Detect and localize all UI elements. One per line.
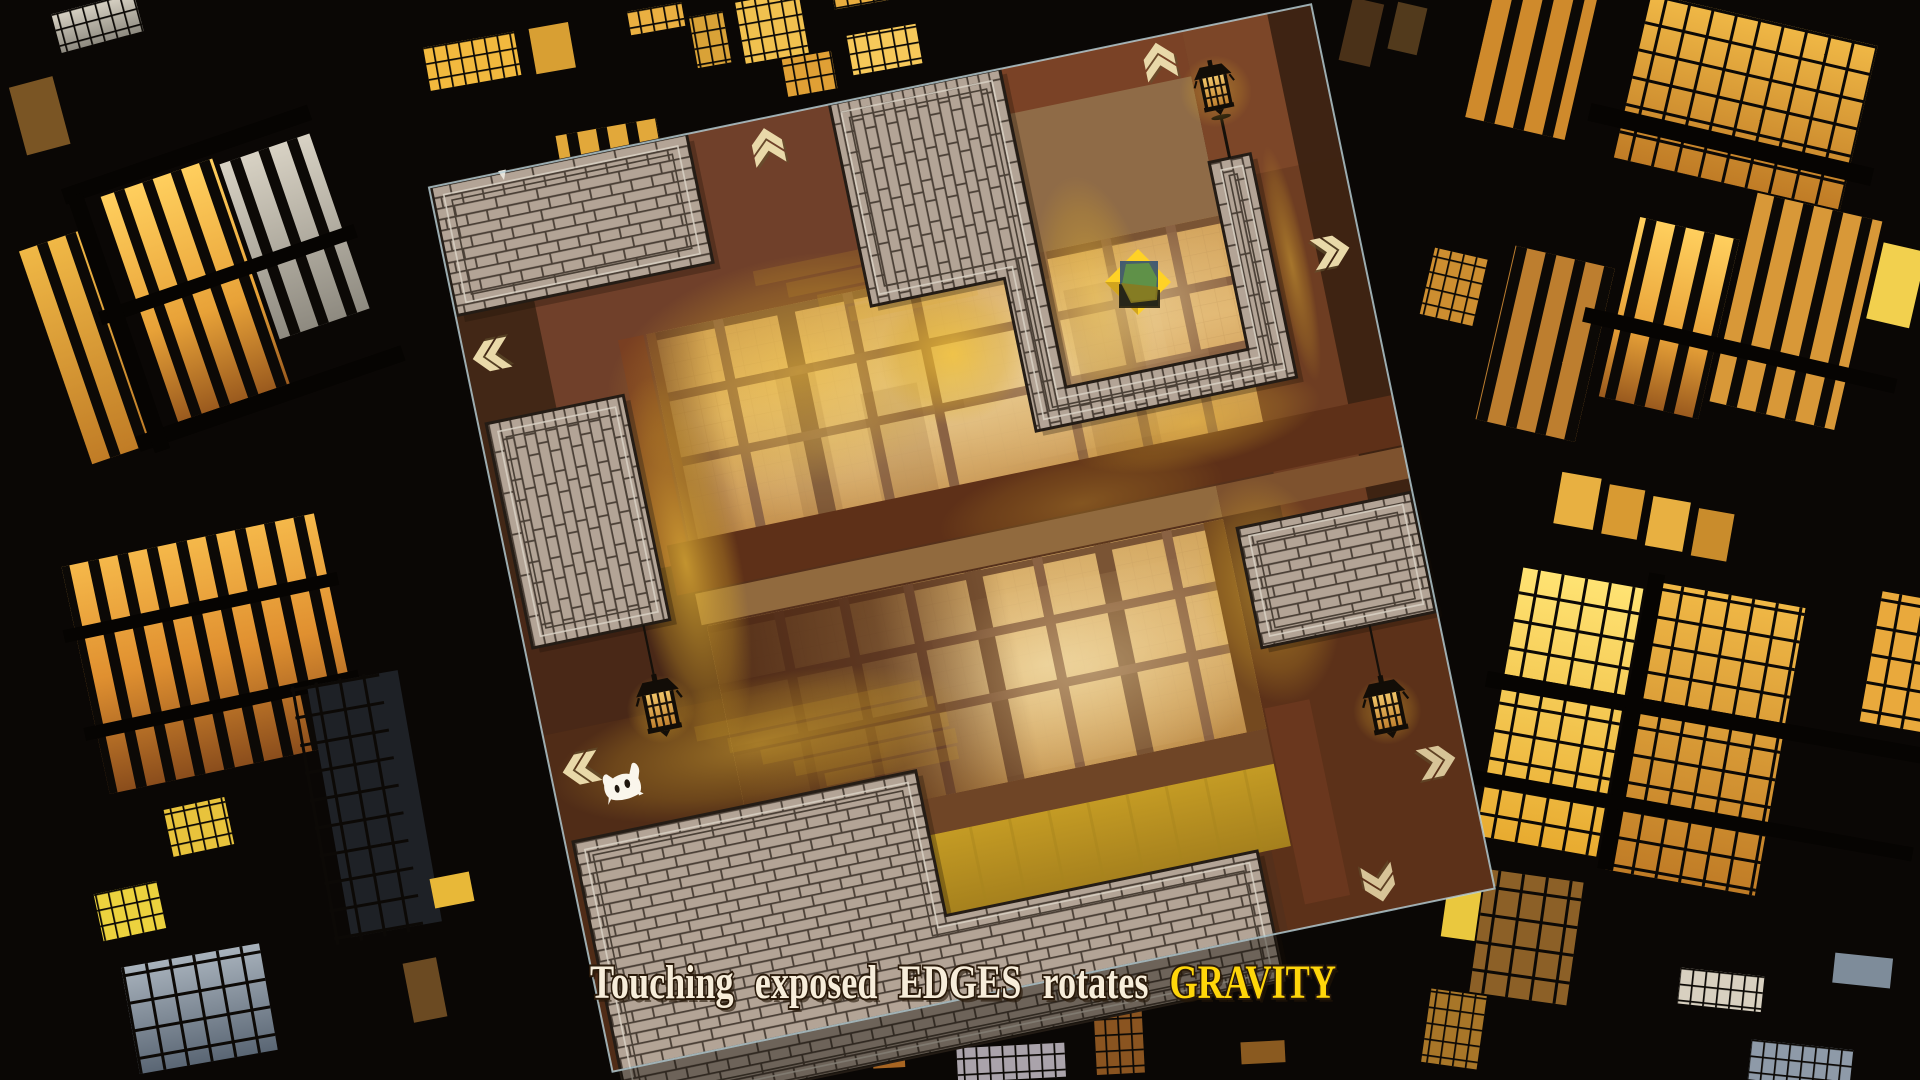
svg-text:Touching exposed EDGES rotates: Touching exposed EDGES rotates GRAVITY: [590, 956, 1336, 1009]
